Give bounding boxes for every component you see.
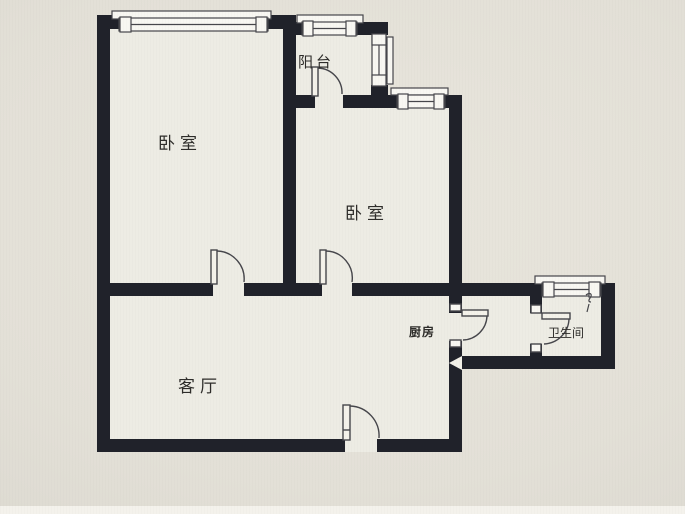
room-label-balcony: 阳台 bbox=[298, 53, 334, 71]
floor-area bbox=[97, 15, 615, 452]
balcony-right-window bbox=[372, 34, 393, 86]
floor-plan-svg: 卧室 阳台 卧室 厨房 卫生间 客厅 bbox=[0, 0, 685, 514]
wall-bottom-west bbox=[97, 439, 345, 452]
floor-plan-photo: 卧室 阳台 卧室 厨房 卫生间 客厅 bbox=[0, 0, 685, 514]
room-label-kitchen: 厨房 bbox=[409, 324, 435, 339]
wall-divider-seg3 bbox=[352, 283, 462, 296]
balcony-top-window bbox=[297, 15, 363, 36]
wall-divider-seg1 bbox=[97, 283, 213, 296]
wall-balcony-top-left-post bbox=[283, 22, 303, 35]
wall-right-outer bbox=[601, 283, 615, 369]
wall-between-bedrooms bbox=[283, 15, 296, 296]
room-label-living-room: 客厅 bbox=[178, 377, 222, 397]
wall-bottom-east bbox=[377, 439, 462, 452]
wall-balcony-top-right-post bbox=[357, 22, 388, 35]
wall-balcony-bottom-west bbox=[283, 95, 315, 108]
wall-left-outer bbox=[97, 15, 110, 452]
wall-divider-seg2 bbox=[244, 283, 322, 296]
room-label-bathroom: 卫生间 bbox=[548, 326, 584, 340]
bedroom-left-window bbox=[112, 11, 271, 32]
wall-bedroom-right-east bbox=[449, 95, 462, 296]
photo-bottom-edge bbox=[0, 506, 685, 514]
bedroom-right-window bbox=[391, 88, 448, 109]
bathroom-window bbox=[535, 276, 605, 297]
room-label-bedroom-left: 卧室 bbox=[158, 134, 202, 154]
room-label-bedroom-right: 卧室 bbox=[345, 204, 389, 224]
wall-balcony-bottom-east bbox=[343, 95, 398, 108]
wall-divider-seg4 bbox=[462, 283, 542, 296]
